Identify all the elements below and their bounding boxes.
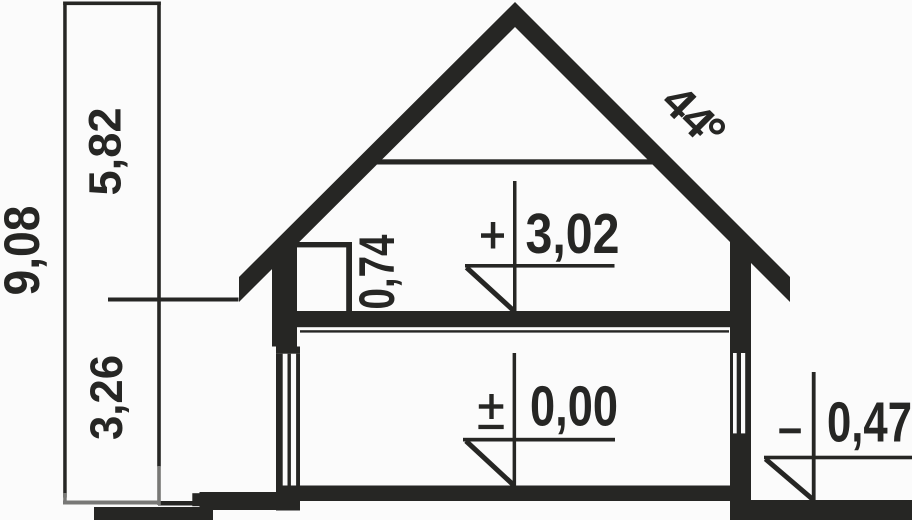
svg-text:5,82: 5,82 xyxy=(80,108,131,196)
svg-text:9,08: 9,08 xyxy=(0,206,50,296)
svg-text:3,26: 3,26 xyxy=(81,355,132,440)
svg-text:0,74: 0,74 xyxy=(349,234,405,309)
svg-text:0,00: 0,00 xyxy=(530,375,618,439)
svg-text:3,02: 3,02 xyxy=(526,202,620,266)
svg-text:0,47: 0,47 xyxy=(827,391,912,455)
